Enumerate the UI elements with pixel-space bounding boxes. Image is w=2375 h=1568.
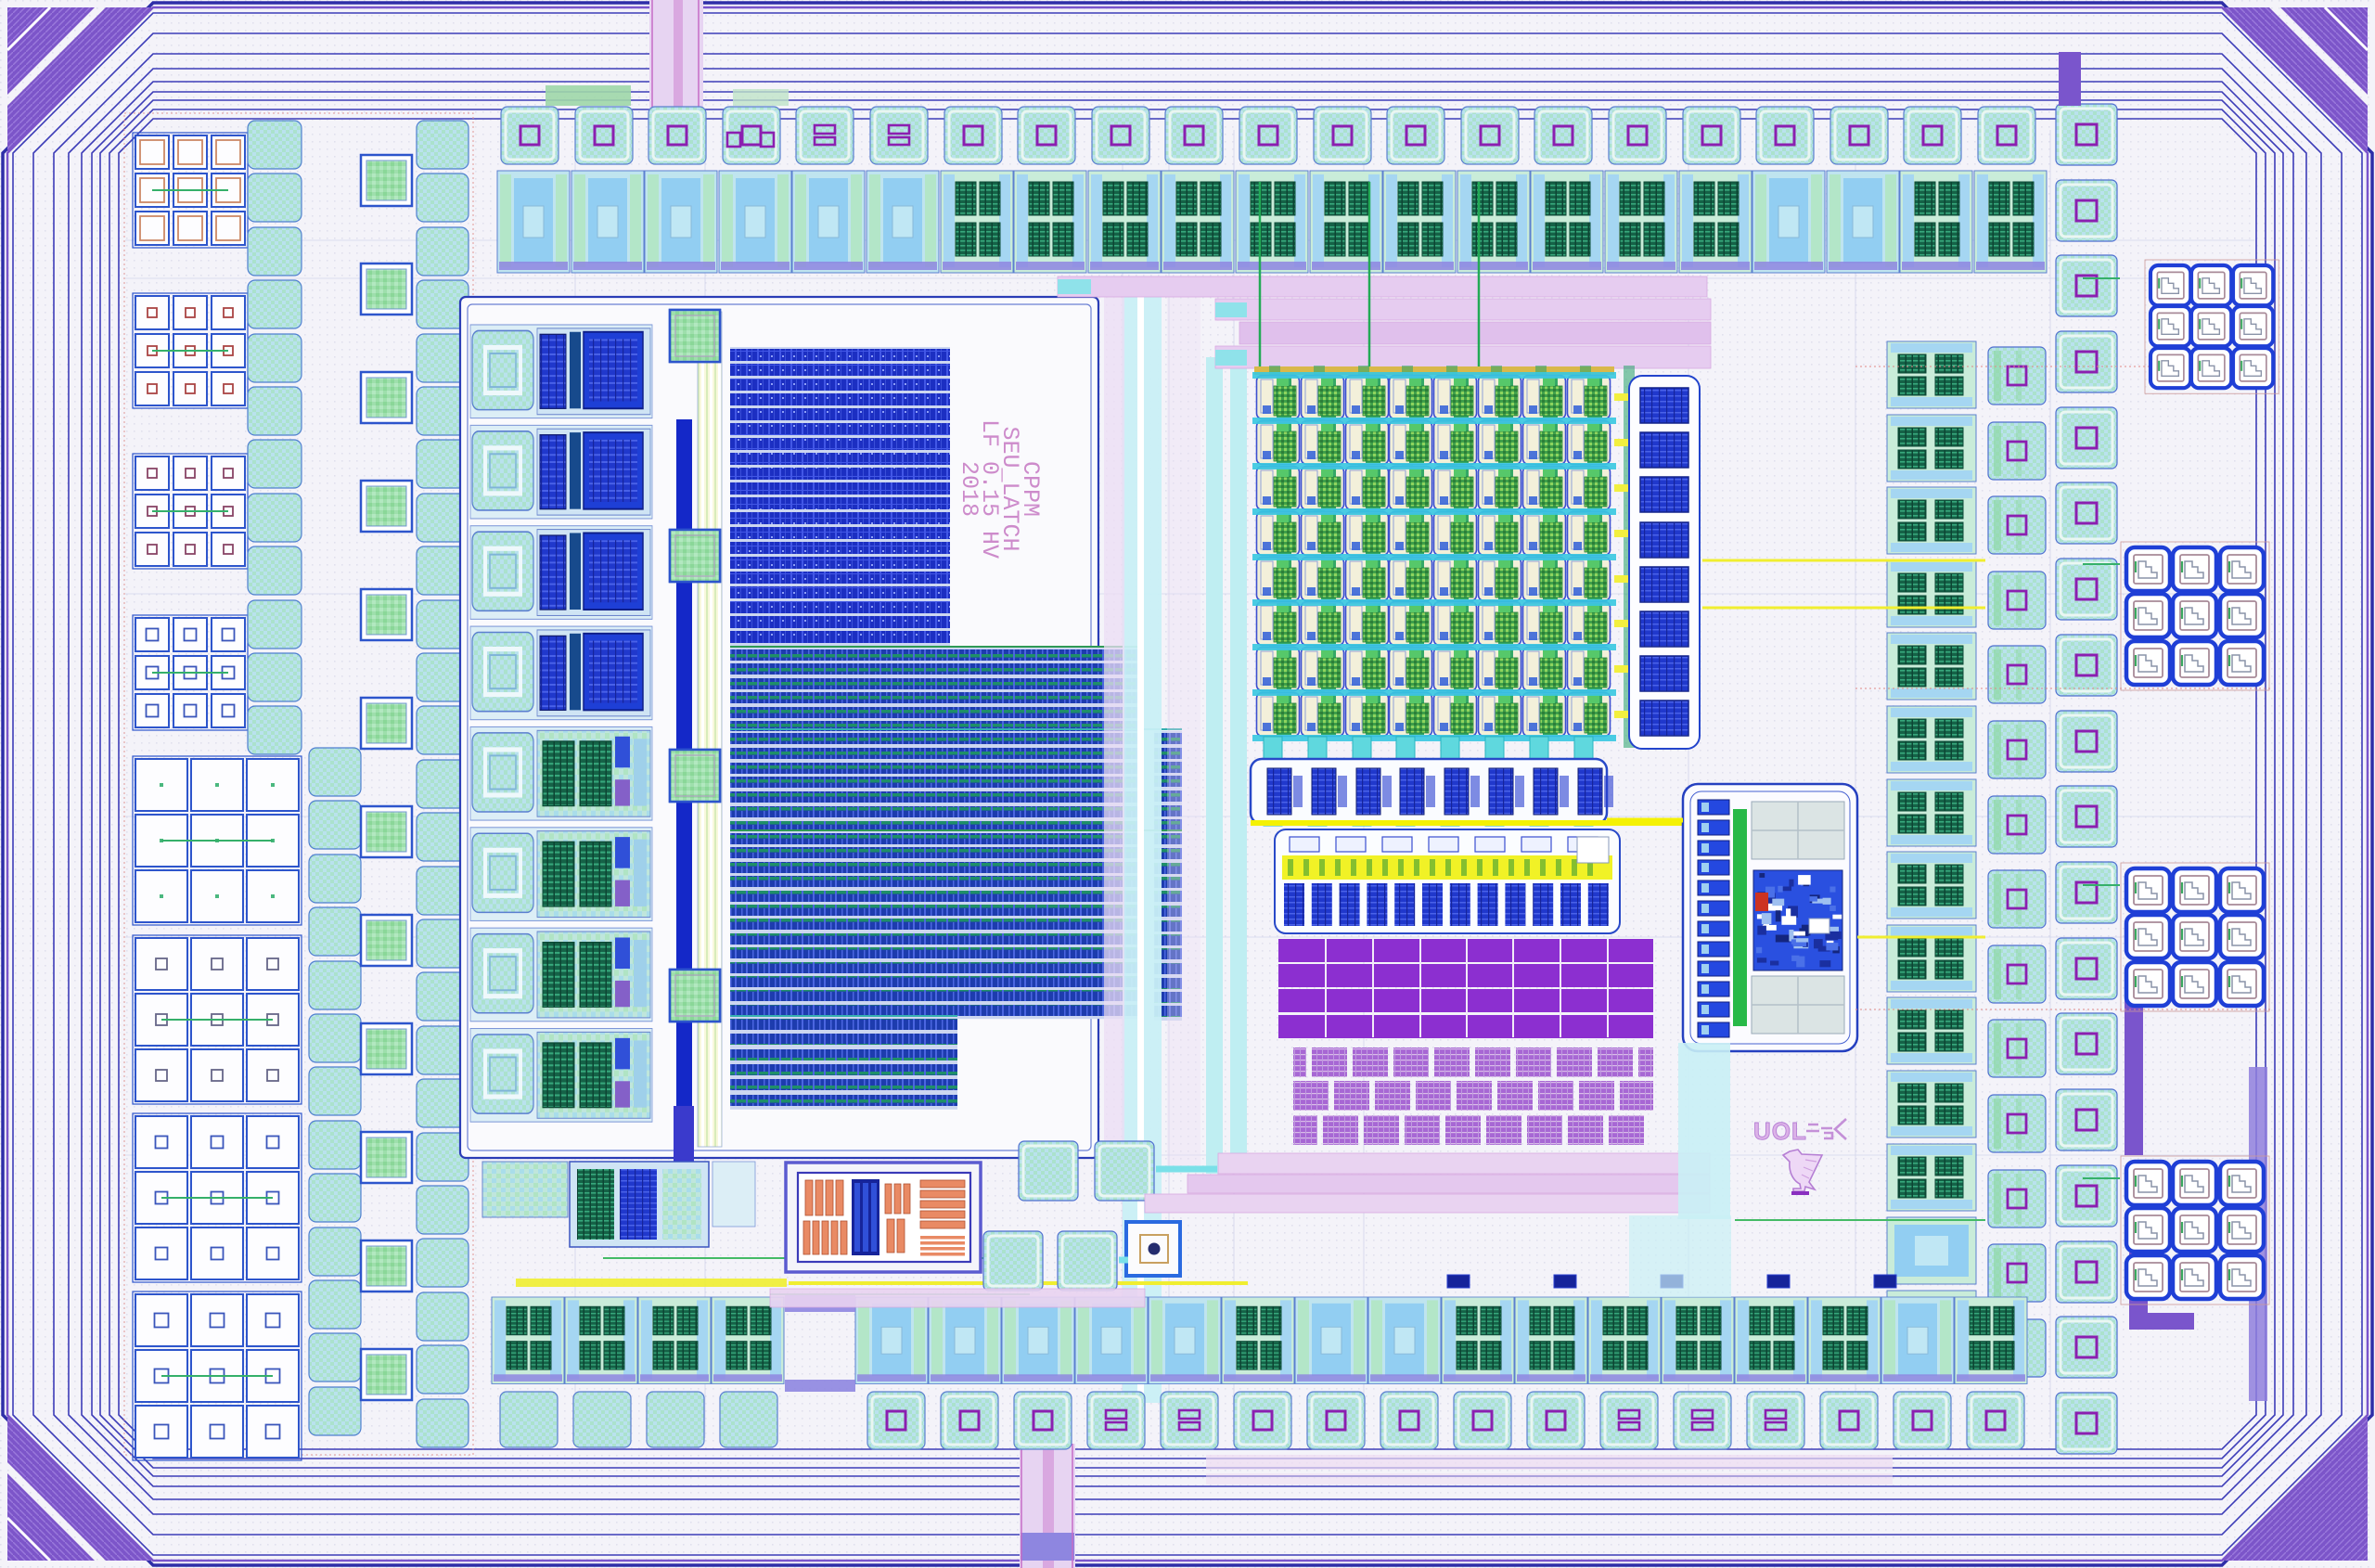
- svg-text:UOL: UOL: [1753, 1117, 1807, 1145]
- svg-text:2018: 2018: [956, 461, 982, 517]
